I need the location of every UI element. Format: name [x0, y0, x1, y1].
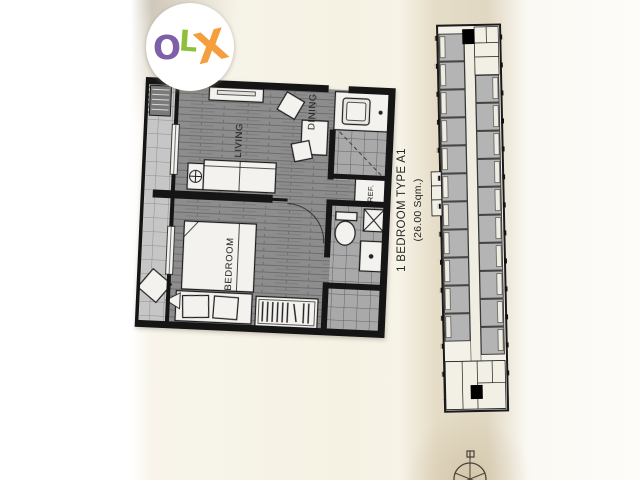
headboard-pillows [175, 291, 252, 324]
keyplan-top-rooms [474, 27, 499, 75]
keyplan-highlighted-unit [462, 29, 474, 44]
olx-watermark: O L X [146, 3, 234, 91]
bed [181, 221, 256, 292]
sofa [203, 160, 276, 193]
olx-letter-x: X [190, 23, 232, 72]
north-compass-icon [447, 449, 493, 480]
photo-overexposed-edge [0, 0, 152, 480]
room-label-ref: REF. [366, 184, 376, 202]
unit-area: (26.00 Sqm.) [411, 125, 426, 295]
room-label-living: LIVING [233, 123, 246, 158]
closet-hangers [255, 296, 318, 329]
kitchen-counter [334, 92, 392, 133]
side-table [187, 163, 204, 190]
keyplan-lobby [445, 360, 506, 409]
room-label-dining: DINING [306, 93, 319, 130]
building-key-plan [427, 22, 515, 416]
unit-floorplan: REF. [135, 77, 396, 338]
unit-type-title: 1 BEDROOM TYPE A1 [394, 125, 411, 295]
bathroom-sink [359, 241, 382, 272]
olx-letter-o: O [152, 30, 181, 64]
floorplan-type-label: 1 BEDROOM TYPE A1 (26.00 Sqm.) [394, 125, 430, 295]
shower-area [363, 209, 384, 232]
